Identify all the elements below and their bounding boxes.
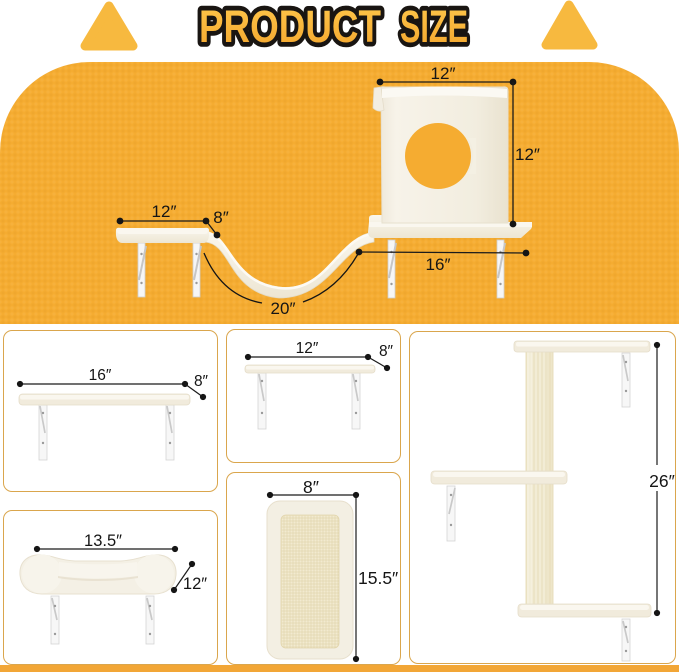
svg-text:16″: 16″	[89, 367, 112, 384]
svg-text:PRODUCT: PRODUCT	[199, 1, 381, 52]
svg-text:15.5″: 15.5″	[358, 568, 398, 588]
svg-text:12″: 12″	[296, 340, 319, 357]
svg-text:8″: 8″	[213, 208, 228, 227]
svg-text:12″: 12″	[152, 202, 177, 221]
svg-text:16″: 16″	[426, 255, 451, 274]
svg-text:12″: 12″	[183, 575, 207, 593]
svg-text:12″: 12″	[431, 64, 456, 83]
svg-text:8″: 8″	[379, 343, 394, 360]
svg-text:SIZE: SIZE	[400, 1, 468, 52]
svg-text:26″: 26″	[649, 471, 675, 491]
svg-text:12″: 12″	[515, 145, 540, 164]
svg-text:8″: 8″	[194, 373, 209, 390]
svg-text:13.5″: 13.5″	[84, 532, 122, 550]
svg-text:20″: 20″	[271, 299, 296, 318]
svg-text:8″: 8″	[303, 477, 319, 497]
